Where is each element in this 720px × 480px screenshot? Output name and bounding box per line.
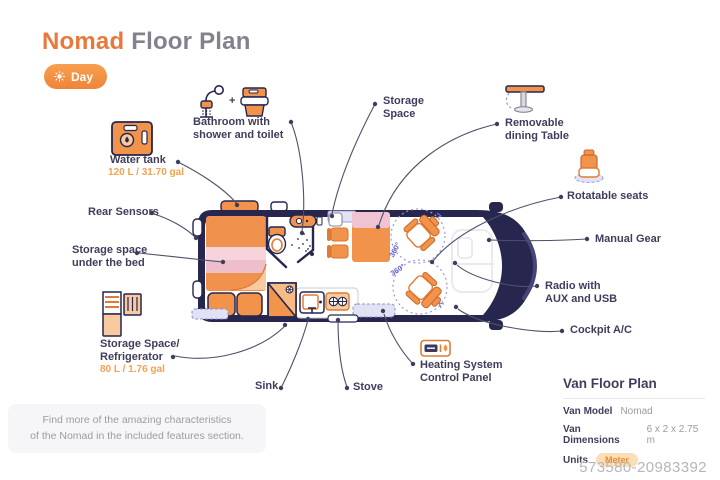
- stowed-table-block: [352, 212, 390, 262]
- callout-dining-table: Removable dining Table: [505, 117, 569, 144]
- shower-icon: [200, 86, 223, 117]
- callout-fridge: Storage Space/ Refrigerator: [100, 338, 179, 365]
- plus-glue: +: [229, 95, 235, 107]
- callout-manual-gear: Manual Gear: [595, 233, 661, 246]
- spec-row-dimensions: Van Dimensions 6 x 2 x 2.75 m: [563, 424, 708, 446]
- toilet: [269, 227, 286, 254]
- water-tank-icon: [112, 122, 152, 155]
- watermark-id: 573580-20983392: [579, 459, 707, 476]
- callout-heating: Heating System Control Panel: [420, 359, 503, 386]
- day-mode-toggle[interactable]: Day: [44, 64, 107, 89]
- spec-value-dimensions: 6 x 2 x 2.75 m: [647, 424, 708, 446]
- page-title-accent: Nomad: [42, 28, 124, 55]
- page-title-rest: Floor Plan: [124, 28, 250, 55]
- rear-sensor-tab: [193, 281, 202, 298]
- callout-stove: Stove: [353, 381, 383, 394]
- kitchen-sink: [300, 292, 324, 313]
- toilet-icon: [241, 88, 268, 116]
- callout-rear-sensors: Rear Sensors: [88, 206, 159, 219]
- spec-value-model: Nomad: [620, 406, 652, 417]
- bathroom-sink: [290, 215, 322, 227]
- spec-label-model: Van Model: [563, 406, 612, 417]
- callout-cockpit-ac: Cockpit A/C: [570, 324, 632, 337]
- sliding-door: [328, 315, 358, 322]
- nomad-floorplan-infographic: +: [0, 0, 720, 480]
- heating-panel-icon: [421, 341, 450, 357]
- callout-under-bed: Storage space under the bed: [72, 244, 147, 271]
- callout-water-tank-capacity: 120 L / 31.70 gal: [108, 167, 184, 179]
- van-floorplan: 360° 360°: [192, 201, 536, 330]
- callout-radio: Radio with AUX and USB: [545, 280, 617, 307]
- features-note-box: Find more of the amazing characteristics…: [8, 404, 266, 453]
- heating-unit-zone: [353, 304, 395, 317]
- callout-storage-space: Storage Space: [383, 95, 424, 122]
- roof-vent: [271, 202, 287, 211]
- features-note-text: Find more of the amazing characteristics…: [30, 413, 244, 443]
- callout-rotatable-seats: Rotatable seats: [567, 190, 648, 203]
- refrigerator-icon: [103, 292, 141, 336]
- callout-water-tank: Water tank: [110, 154, 166, 167]
- day-mode-label: Day: [71, 70, 93, 84]
- rear-sensor-tab: [193, 219, 202, 236]
- bench-cushion: [237, 293, 262, 316]
- spec-divider: [563, 398, 705, 399]
- dining-table-icon: [506, 86, 544, 112]
- callout-sink: Sink: [255, 380, 278, 393]
- callout-fridge-capacity: 80 L / 1.76 gal: [100, 364, 165, 376]
- door-step-zone: [192, 309, 228, 319]
- rotatable-seat-icon: [575, 150, 603, 183]
- refrigerator: [268, 283, 296, 317]
- stove: [326, 293, 349, 310]
- wing-mirror-top: [489, 202, 503, 212]
- spec-panel: Van Floor Plan Van Model Nomad Van Dimen…: [563, 376, 708, 467]
- spec-row-model: Van Model Nomad: [563, 406, 708, 417]
- spec-panel-title: Van Floor Plan: [563, 376, 708, 391]
- callout-bathroom: Bathroom with shower and toilet: [193, 116, 283, 143]
- page-title: Nomad Floor Plan: [42, 28, 251, 56]
- spec-label-dimensions: Van Dimensions: [563, 424, 639, 446]
- sun-icon: [54, 71, 65, 82]
- bed: [206, 216, 266, 291]
